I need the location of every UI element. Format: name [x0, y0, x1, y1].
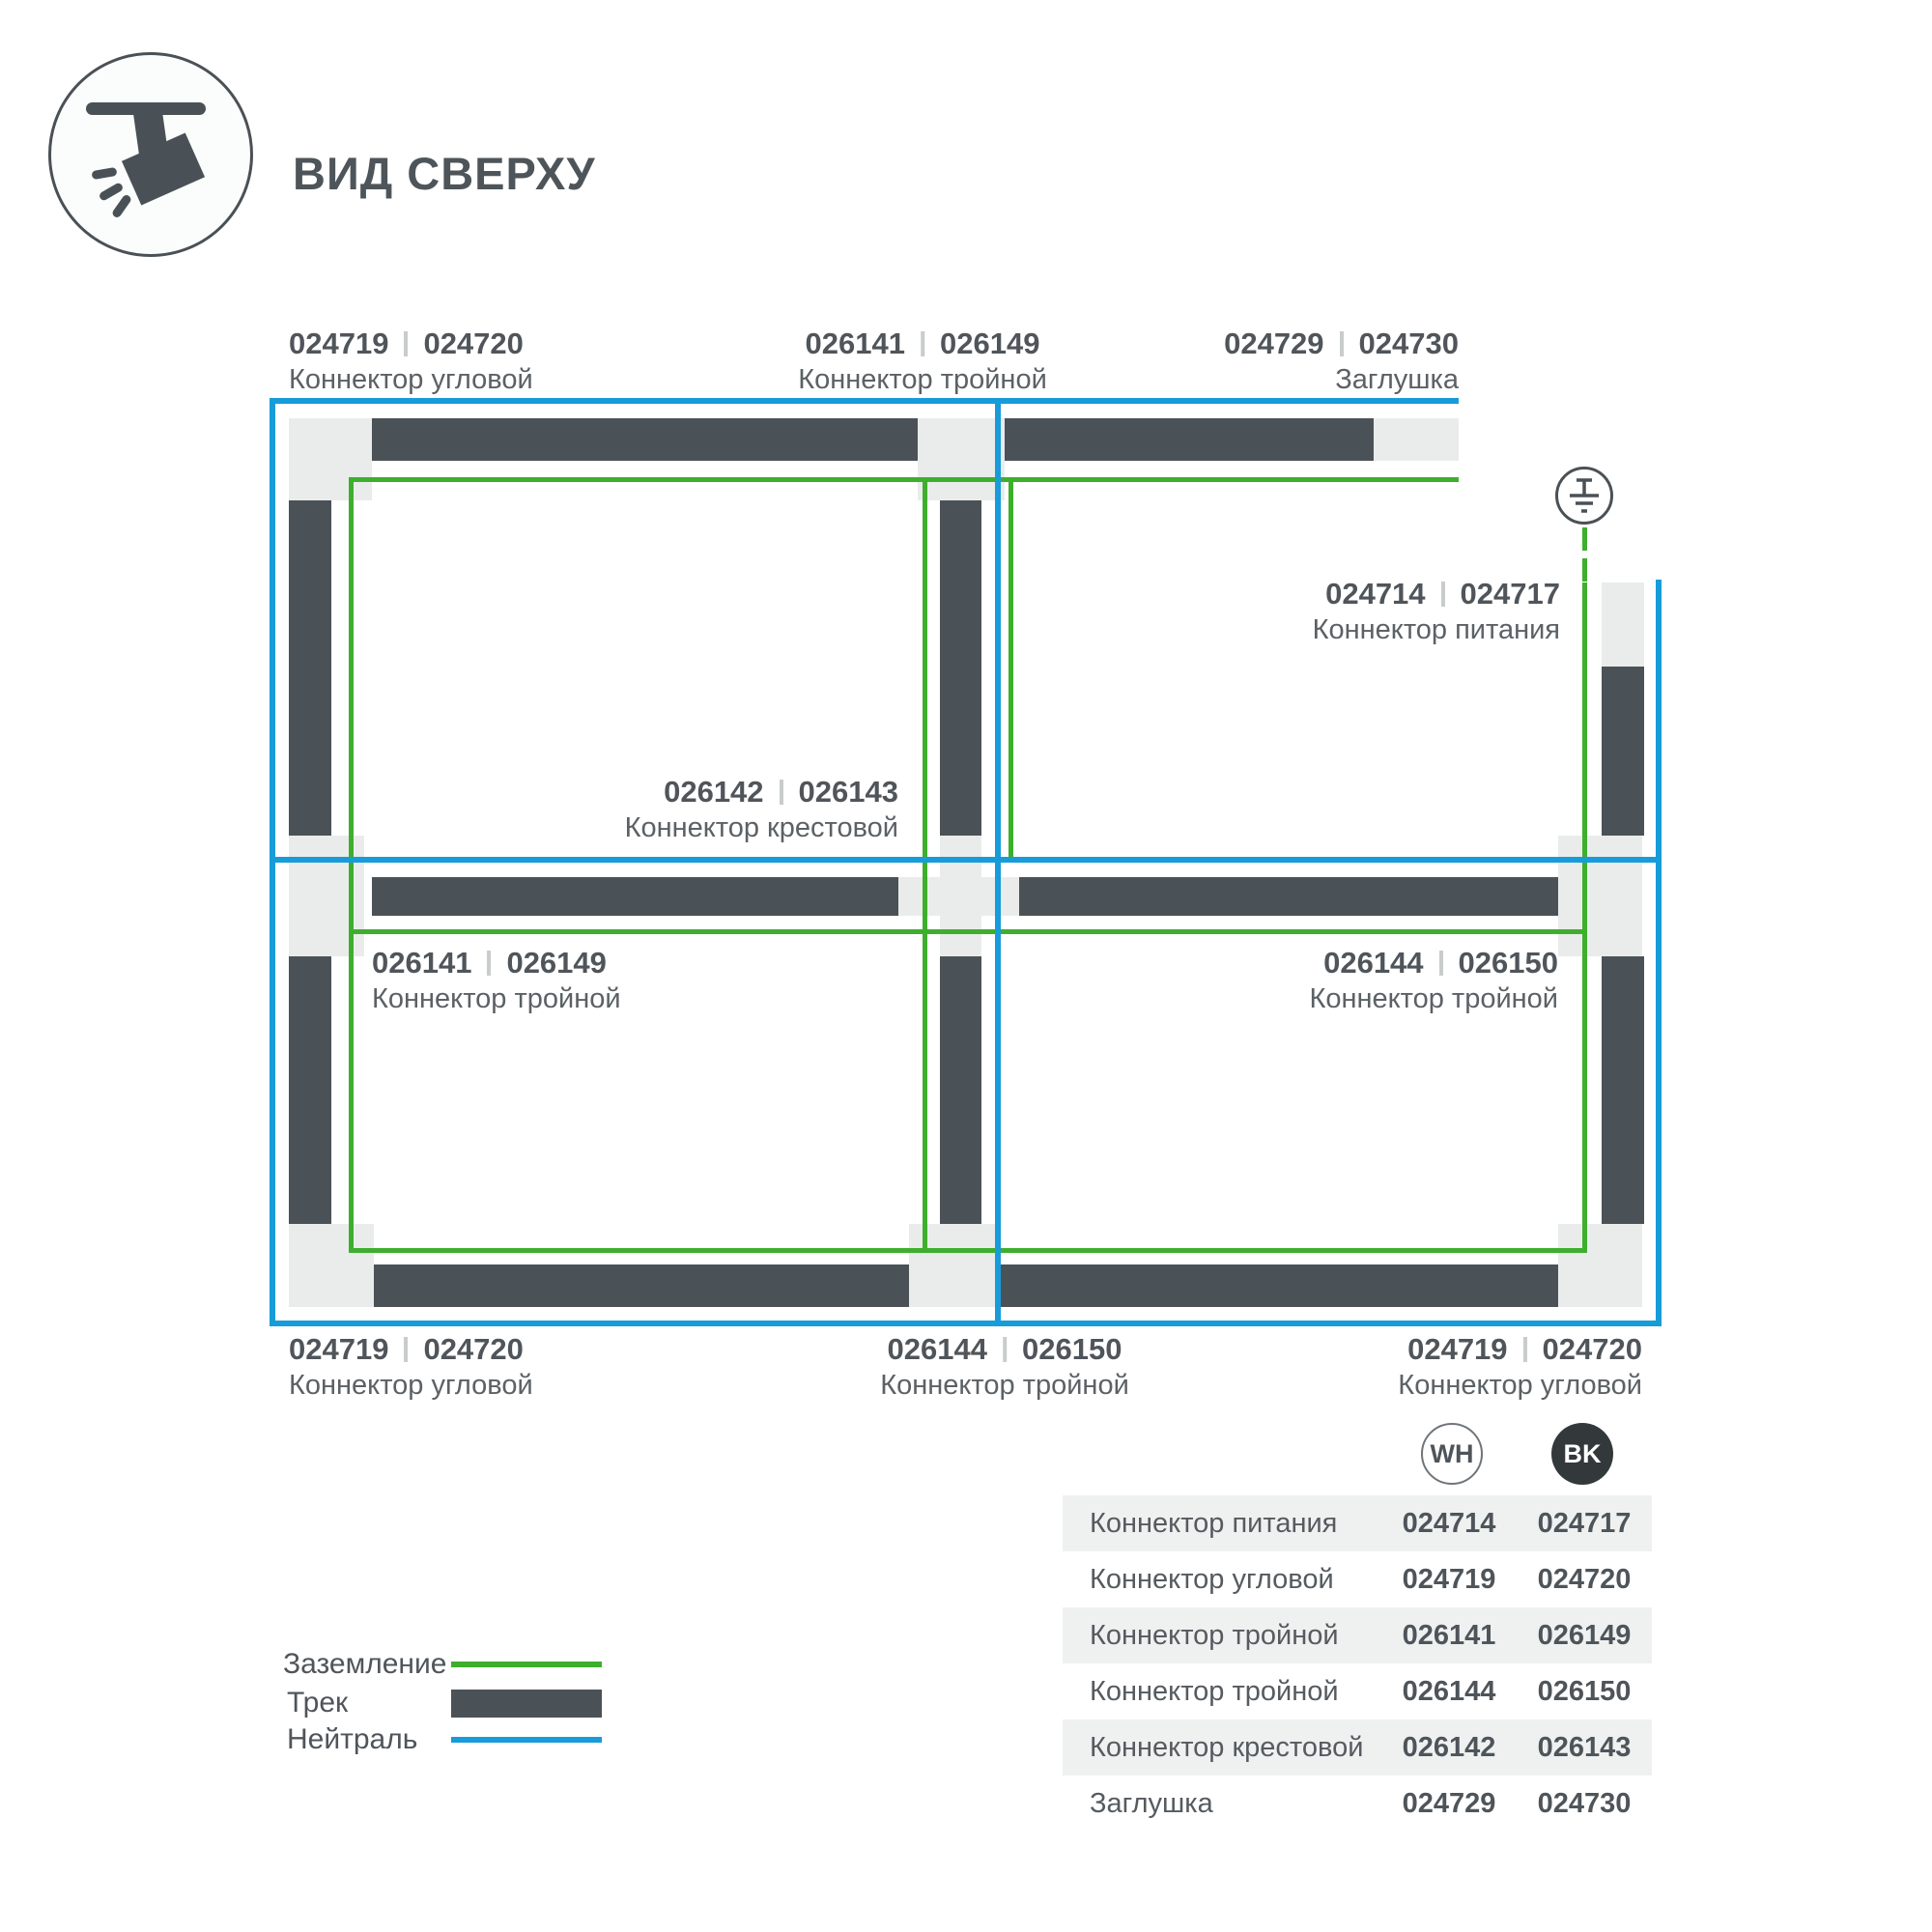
top-view-spotlight-icon — [48, 52, 253, 257]
ground-line-middle — [349, 929, 1587, 934]
label-tee-connector-bottom-center: 026144026150 Коннектор тройной — [880, 1332, 1129, 1402]
page-title: ВИД СВЕРХУ — [293, 147, 596, 200]
label-codes: 024719024720 — [289, 1332, 533, 1367]
label-corner-connector-bottom-right: 024719024720 Коннектор угловой — [1398, 1332, 1642, 1402]
label-codes: 026142026143 — [625, 775, 898, 810]
neutral-line-right-vertical — [1656, 580, 1662, 1326]
legend-label-track: Трек — [287, 1687, 348, 1719]
track-segment — [1602, 667, 1644, 836]
label-codes: 024719024720 — [289, 327, 533, 361]
connector-pad-tee-middle-right — [1558, 836, 1642, 956]
label-tee-connector-middle-left: 026141026149 Коннектор тройной — [372, 946, 621, 1015]
legend-label-neutral: Нейтраль — [287, 1723, 417, 1756]
label-codes: 024729024730 — [1224, 327, 1459, 361]
legend-track-bar — [451, 1690, 602, 1718]
ground-line-center-left-vertical — [923, 477, 927, 1253]
column-badge-white: WH — [1421, 1423, 1483, 1485]
label-power-connector: 024714024717 Коннектор питания — [1313, 577, 1560, 646]
page: ВИД СВЕРХУ — [0, 0, 1932, 1932]
table-row: Коннектор крестовой 026142 026143 — [1063, 1719, 1652, 1776]
label-corner-connector-top-left: 024719024720 Коннектор угловой — [289, 327, 533, 396]
label-codes: 024714024717 — [1313, 577, 1560, 611]
legend-neutral-line — [451, 1737, 602, 1743]
label-end-cap-top-right: 024729024730 Заглушка — [1224, 327, 1459, 396]
label-codes: 026141026149 — [372, 946, 621, 980]
table-row: Заглушка 024729 024730 — [1063, 1776, 1652, 1832]
connector-pad-corner-bottom-right — [1558, 1224, 1642, 1307]
track-segment — [1005, 418, 1374, 461]
connector-pad-tee-top-center — [918, 418, 1005, 500]
column-badge-black: BK — [1551, 1423, 1613, 1485]
label-codes: 024719024720 — [1398, 1332, 1642, 1367]
track-segment — [372, 877, 898, 916]
ground-icon — [1555, 467, 1613, 525]
ground-line-bottom — [349, 1248, 1587, 1253]
track-segment — [1019, 877, 1558, 916]
table-row: Коннектор тройной 026144 026150 — [1063, 1663, 1652, 1719]
connector-pad-corner-bottom-left — [289, 1224, 374, 1307]
table-row: Коннектор тройной 026141 026149 — [1063, 1607, 1652, 1663]
track-segment — [996, 1264, 1558, 1307]
part-number-table: Коннектор питания 024714 024717 Коннекто… — [1063, 1495, 1652, 1832]
track-segment — [940, 956, 981, 1224]
legend-label-ground: Заземление — [283, 1648, 446, 1681]
track-segment — [374, 1264, 909, 1307]
neutral-line-top — [270, 398, 1459, 404]
label-tee-connector-middle-right: 026144026150 Коннектор тройной — [1309, 946, 1558, 1015]
ground-line-top — [349, 477, 1459, 482]
track-segment — [289, 956, 331, 1224]
table-row: Коннектор питания 024714 024717 — [1063, 1495, 1652, 1551]
ground-line-dashed-drop — [1582, 527, 1587, 582]
label-codes: 026144026150 — [880, 1332, 1129, 1367]
label-tee-connector-top-center: 026141026149 Коннектор тройной — [798, 327, 1047, 396]
ground-line-left-vertical — [349, 477, 354, 1253]
neutral-line-middle — [270, 857, 1662, 863]
legend-ground-line — [451, 1662, 602, 1667]
neutral-line-center-vertical — [995, 398, 1001, 1326]
connector-pad-cross-center-horizontal — [898, 877, 1019, 916]
ground-line-center-right-vertical — [1009, 477, 1013, 860]
track-segment — [1602, 956, 1644, 1224]
connector-pad-power-feed — [1602, 582, 1644, 667]
label-codes: 026141026149 — [798, 327, 1047, 361]
track-segment — [289, 500, 331, 836]
label-cross-connector: 026142026143 Коннектор крестовой — [625, 775, 898, 844]
connector-pad-corner-top-left — [289, 418, 372, 500]
track-segment — [372, 418, 918, 461]
neutral-line-bottom — [270, 1321, 1662, 1326]
label-codes: 026144026150 — [1309, 946, 1558, 980]
end-cap-top-right — [1374, 418, 1459, 461]
label-corner-connector-bottom-left: 024719024720 Коннектор угловой — [289, 1332, 533, 1402]
ground-line-right-vertical — [1582, 582, 1587, 1253]
table-row: Коннектор угловой 024719 024720 — [1063, 1551, 1652, 1607]
track-segment — [940, 500, 981, 836]
